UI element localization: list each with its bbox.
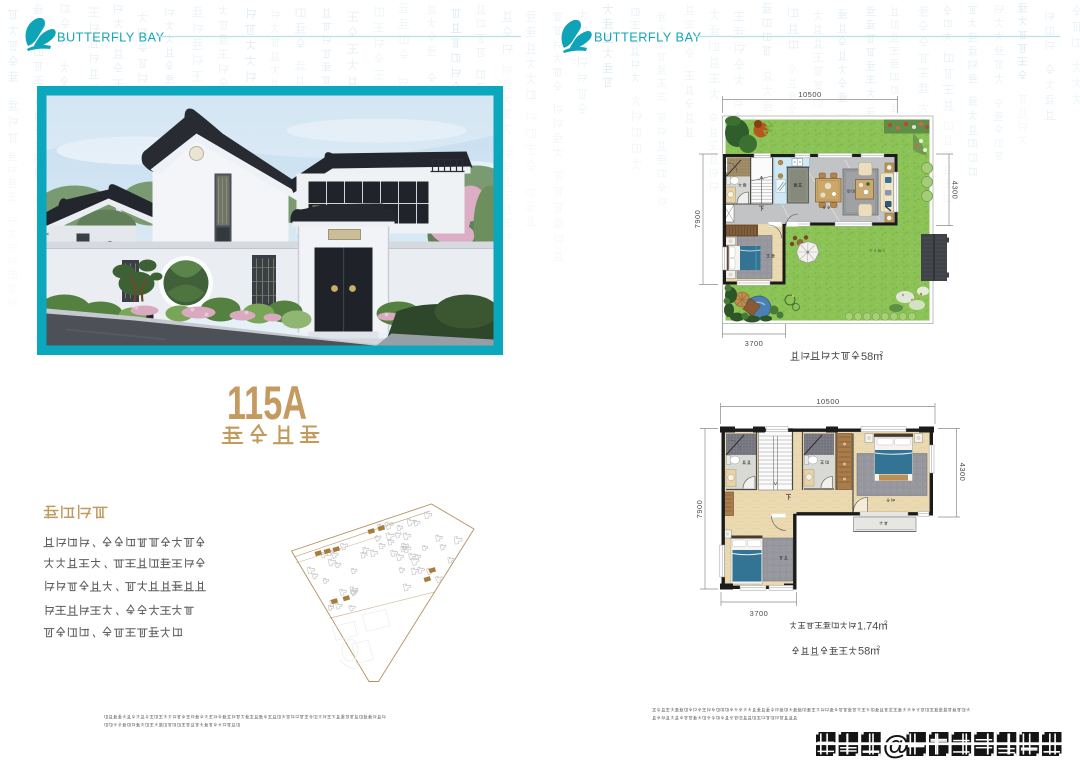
- svg-text:3700: 3700: [750, 609, 769, 618]
- svg-text:10500: 10500: [798, 90, 821, 99]
- svg-text:115A: 115A: [227, 376, 307, 429]
- svg-text:7900: 7900: [695, 500, 704, 519]
- svg-text:2: 2: [880, 351, 884, 358]
- svg-text:BUTTERFLY BAY: BUTTERFLY BAY: [594, 30, 702, 45]
- svg-text:BUTTERFLY BAY: BUTTERFLY BAY: [57, 30, 165, 45]
- svg-text:7900: 7900: [693, 210, 702, 229]
- svg-text:4300: 4300: [951, 181, 960, 200]
- svg-text:10500: 10500: [816, 397, 839, 406]
- svg-text:2: 2: [884, 620, 888, 627]
- svg-text:4300: 4300: [958, 463, 967, 482]
- svg-text:1.74m: 1.74m: [857, 621, 888, 633]
- svg-text:2: 2: [877, 645, 881, 652]
- svg-text:3700: 3700: [745, 339, 764, 348]
